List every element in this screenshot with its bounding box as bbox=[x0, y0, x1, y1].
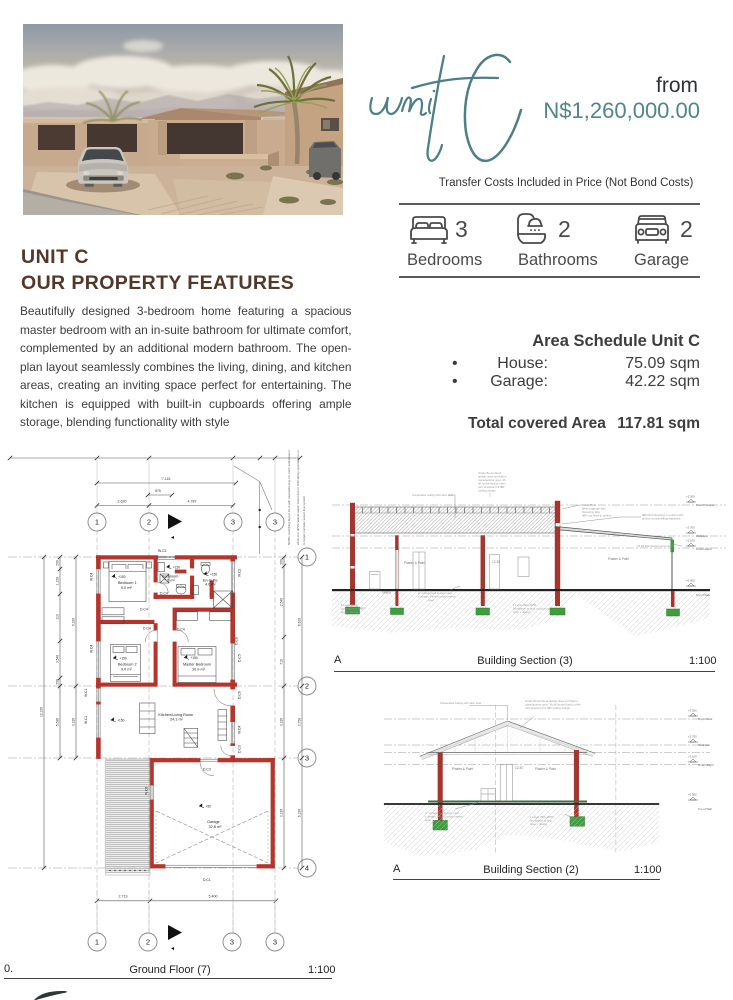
svg-text:Bedroom 2: Bedroom 2 bbox=[118, 663, 137, 667]
svg-text:D.C8: D.C8 bbox=[235, 637, 239, 645]
svg-text:+150: +150 bbox=[120, 657, 127, 661]
svg-text:Garage: Garage bbox=[207, 820, 220, 824]
svg-text:anchor to beamfilling stabiliz: anchor to beamfilling stabilized bbox=[642, 517, 681, 521]
svg-text:D.C4: D.C4 bbox=[140, 608, 148, 612]
svg-text:W.C2: W.C2 bbox=[238, 569, 242, 577]
svg-text:2: 2 bbox=[305, 682, 309, 691]
svg-text:◂: ◂ bbox=[171, 946, 174, 952]
svg-text:6.630: 6.630 bbox=[298, 618, 302, 626]
svg-text:W.C5: W.C5 bbox=[145, 787, 149, 795]
svg-text:4.0 m²: 4.0 m² bbox=[205, 583, 216, 587]
svg-text:3.750: 3.750 bbox=[298, 718, 302, 726]
svg-text:3.190: 3.190 bbox=[72, 718, 76, 726]
svg-text:3: 3 bbox=[305, 754, 309, 763]
svg-text:3.190: 3.190 bbox=[280, 718, 284, 726]
svg-text:3.540: 3.540 bbox=[56, 655, 60, 663]
svg-text:Bedroom 1: Bedroom 1 bbox=[118, 581, 137, 585]
svg-text:W.C1: W.C1 bbox=[84, 689, 88, 697]
svg-text:110: 110 bbox=[56, 614, 60, 619]
svg-text:875: 875 bbox=[155, 489, 161, 493]
svg-text:6.190: 6.190 bbox=[298, 809, 302, 817]
svg-text:200: 200 bbox=[280, 559, 284, 565]
svg-text:+150: +150 bbox=[117, 719, 124, 723]
svg-text:+150: +150 bbox=[191, 656, 198, 660]
svg-text:710: 710 bbox=[280, 659, 284, 665]
svg-text:+150: +150 bbox=[173, 566, 180, 570]
svg-text:1: 1 bbox=[95, 938, 99, 947]
svg-text:spec + design: spec + design bbox=[530, 822, 548, 826]
svg-text:W.C1: W.C1 bbox=[84, 716, 88, 724]
svg-text:spec + design: spec + design bbox=[513, 610, 531, 614]
svg-text:W.C3: W.C3 bbox=[158, 549, 166, 553]
svg-text:4.787: 4.787 bbox=[188, 500, 197, 504]
svg-text:D.C5: D.C5 bbox=[238, 654, 242, 662]
svg-text:20.38 Flat Narrow pressure IT: 20.38 Flat Narrow pressure IT bbox=[637, 544, 674, 548]
svg-text:D.C6: D.C6 bbox=[237, 691, 241, 699]
svg-text:IBR roof fixed to purlins: IBR roof fixed to purlins bbox=[582, 514, 612, 518]
svg-text:+ design. Finish to suit curre: + design. Finish to suit current bbox=[418, 595, 456, 599]
svg-text:7.0 m²: 7.0 m² bbox=[164, 579, 175, 583]
svg-text:2.620: 2.620 bbox=[118, 500, 127, 504]
svg-text:Suspended ceiling with skim sp: Suspended ceiling with skim spar bbox=[440, 701, 481, 705]
svg-text:Plaster & Paint: Plaster & Paint bbox=[608, 557, 629, 561]
svg-text:2: 2 bbox=[146, 938, 150, 947]
svg-text:Top of Roof: Top of Roof bbox=[698, 717, 713, 721]
svg-text:roof structure 0.5 IBR roofing: roof structure 0.5 IBR roofing design bbox=[525, 706, 570, 710]
svg-text:+3.300: +3.300 bbox=[686, 495, 695, 499]
svg-text:+50: +50 bbox=[206, 805, 212, 809]
svg-text:to larger complex sewer line s: to larger complex sewer line system bbox=[302, 495, 306, 545]
svg-text:W.C4: W.C4 bbox=[90, 645, 94, 653]
svg-text:W.C4: W.C4 bbox=[238, 726, 242, 734]
svg-text:Top of Wall: Top of Wall bbox=[698, 807, 712, 811]
svg-text:spec: spec bbox=[425, 818, 432, 822]
svg-text:W.C4: W.C4 bbox=[90, 573, 94, 581]
svg-text:Wallplate: Wallplate bbox=[696, 534, 708, 538]
svg-text:10.9 m²: 10.9 m² bbox=[192, 668, 206, 672]
svg-text:Lintel Height: Lintel Height bbox=[698, 763, 714, 767]
svg-text:D.C1: D.C1 bbox=[203, 878, 211, 882]
svg-text:3.190: 3.190 bbox=[280, 809, 284, 817]
svg-text:200: 200 bbox=[56, 560, 60, 566]
svg-text:5.536: 5.536 bbox=[56, 718, 60, 726]
svg-text:+3.300: +3.300 bbox=[688, 709, 697, 713]
svg-text:5.400: 5.400 bbox=[209, 895, 218, 899]
svg-text:Lintel Height: Lintel Height bbox=[696, 547, 712, 551]
svg-text:◂: ◂ bbox=[171, 535, 174, 541]
svg-text:D.C3: D.C3 bbox=[238, 745, 242, 753]
svg-text:24.1 m²: 24.1 m² bbox=[170, 718, 184, 722]
svg-text:+2.700: +2.700 bbox=[688, 735, 697, 739]
svg-text:+2.100: +2.100 bbox=[686, 539, 695, 543]
svg-text:Plaster & Paint: Plaster & Paint bbox=[535, 767, 556, 771]
svg-text:7.115: 7.115 bbox=[162, 477, 171, 481]
svg-text:D.C3: D.C3 bbox=[203, 768, 211, 772]
svg-text:1.150: 1.150 bbox=[56, 577, 60, 585]
svg-text:2.540: 2.540 bbox=[280, 598, 284, 606]
svg-text:Top of Slab: Top of Slab bbox=[696, 593, 710, 597]
svg-text:4: 4 bbox=[305, 864, 309, 873]
svg-text:Kitchen/Living Room: Kitchen/Living Room bbox=[158, 713, 193, 717]
svg-text:+150: +150 bbox=[118, 575, 125, 579]
svg-text:+2.100: +2.100 bbox=[688, 755, 697, 759]
svg-text:9.0 m²: 9.0 m² bbox=[121, 586, 132, 590]
svg-text:3: 3 bbox=[273, 518, 277, 527]
svg-text:200: 200 bbox=[56, 679, 60, 685]
svg-text:Plaster & Paint: Plaster & Paint bbox=[404, 561, 425, 565]
svg-text:D.C4: D.C4 bbox=[143, 627, 151, 631]
svg-text:3: 3 bbox=[231, 518, 235, 527]
svg-text:+2.700: +2.700 bbox=[686, 526, 695, 530]
svg-text:spec + design: spec + design bbox=[341, 610, 359, 614]
svg-text:Top of Parapet: Top of Parapet bbox=[696, 503, 714, 507]
svg-text:+150: +150 bbox=[210, 573, 217, 577]
svg-text:ø110 mm uPVC Waste water sewer: ø110 mm uPVC Waste water sewer line to 3… bbox=[296, 450, 300, 545]
svg-text:3: 3 bbox=[273, 938, 277, 947]
svg-text:+0.000: +0.000 bbox=[688, 793, 697, 797]
svg-text:Grano: Grano bbox=[382, 591, 391, 595]
svg-text:2.719: 2.719 bbox=[119, 895, 128, 899]
svg-text:32.8 m²: 32.8 m² bbox=[209, 825, 223, 829]
svg-text:12.30: 12.30 bbox=[515, 766, 523, 770]
svg-text:D.C4: D.C4 bbox=[160, 592, 168, 596]
svg-text:2: 2 bbox=[147, 518, 151, 527]
svg-text:1: 1 bbox=[95, 518, 99, 527]
svg-text:NOTE: plumbing layout t/o,d wi: NOTE: plumbing layout t/o,d with special… bbox=[287, 450, 291, 545]
svg-text:1: 1 bbox=[305, 553, 309, 562]
svg-text:Plaster & Paint: Plaster & Paint bbox=[452, 767, 473, 771]
svg-text:Suspended ceiling with skim sp: Suspended ceiling with skim spar bbox=[412, 493, 453, 497]
svg-text:spec: spec bbox=[428, 598, 435, 602]
svg-text:3: 3 bbox=[230, 938, 234, 947]
svg-text:D.C4: D.C4 bbox=[177, 628, 185, 632]
svg-text:9.0 m²: 9.0 m² bbox=[121, 668, 132, 672]
svg-text:12.30: 12.30 bbox=[492, 560, 500, 564]
svg-text:12.100: 12.100 bbox=[40, 707, 44, 717]
svg-text:Master Bedroom: Master Bedroom bbox=[183, 663, 211, 667]
svg-text:Wallplate: Wallplate bbox=[698, 743, 710, 747]
svg-text:5.190: 5.190 bbox=[72, 618, 76, 626]
svg-text:+0.000: +0.000 bbox=[686, 579, 695, 583]
